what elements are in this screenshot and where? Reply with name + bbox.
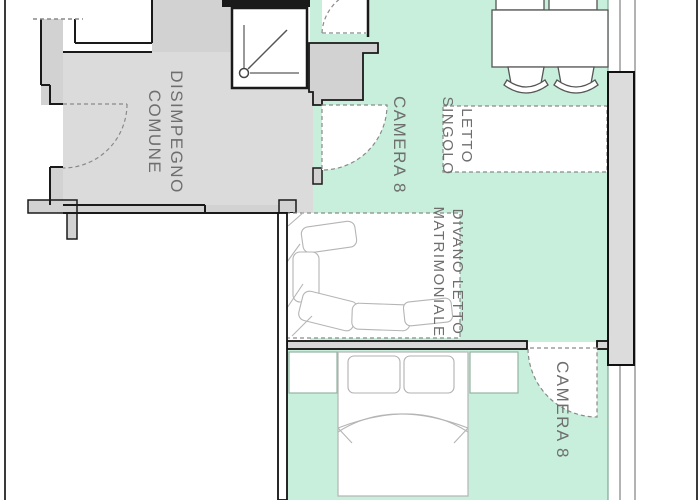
lower-room-wall-stub [597,341,608,349]
room-label-disimpegno-comune: DISIMPEGNO COMUNE [143,70,187,194]
shower-icon [232,8,307,88]
furniture-label-divano-letto: DIVANO LETTO MATRIMONIALE [429,206,467,337]
furniture-label-letto-singolo: LETTO SINGOLO [438,97,476,176]
bedside-niche-right [470,352,518,393]
chair-top-1 [496,0,544,10]
right-wall-bar [608,72,634,365]
entry-door-swing [322,0,368,37]
bedside-niche-left [289,352,337,393]
room-label-camera8-upper: CAMERA 8 [388,96,410,194]
pillow-left [348,356,400,393]
lower-room-left-wall [278,213,287,500]
room-label-camera8-lower: CAMERA 8 [551,361,573,459]
floor-plan-canvas [0,0,700,500]
chair-top-2 [549,0,597,10]
dining-table [492,10,608,67]
lower-room-top-wall [287,341,527,349]
pillow-right [404,356,454,393]
floor-plan: DISIMPEGNO COMUNE CAMERA 8 LETTO SINGOLO… [0,0,700,500]
